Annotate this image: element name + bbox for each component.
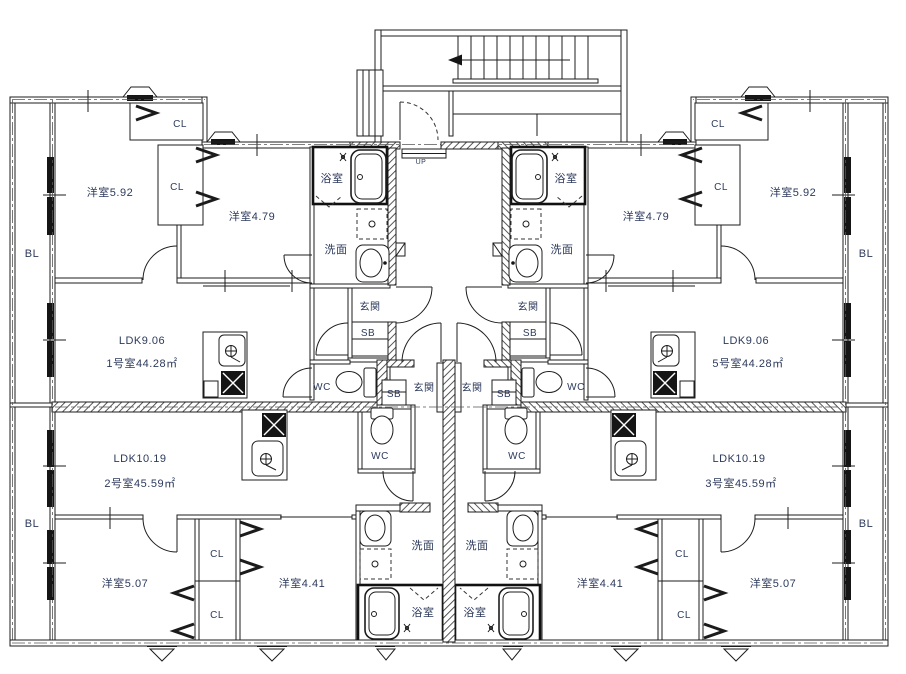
- closet-hanger-mark: [174, 586, 194, 600]
- label-room-441-right: 洋室4.41: [577, 576, 623, 590]
- label-unit-5: 5号室44.28㎡: [712, 356, 783, 370]
- toilet: [371, 408, 393, 444]
- entry-top-wall: [310, 284, 390, 288]
- label-room-592-left: 洋室5.92: [87, 185, 133, 199]
- kitchen-counter: [242, 410, 287, 480]
- washer-icon: [360, 549, 391, 579]
- label-wash-2: 洗面: [412, 539, 435, 552]
- label-entry-2: 玄関: [414, 381, 435, 394]
- cl-column-wall: [236, 519, 240, 640]
- label-wc-2: WC: [371, 451, 389, 462]
- wash2-hatch-wall: [400, 503, 430, 512]
- label-cl-up-right2: CL: [675, 549, 689, 560]
- wash-basin: [360, 511, 391, 546]
- label-unit-2: 2号室45.59㎡: [104, 476, 175, 490]
- label-bath-2: 浴室: [412, 605, 435, 619]
- label-room-507-right: 洋室5.07: [750, 576, 796, 590]
- wc2-side-wall: [411, 405, 415, 473]
- label-cl-mid-left: CL: [170, 182, 184, 193]
- meter-space: [357, 70, 383, 136]
- label-sb-2: SB: [387, 389, 401, 400]
- label-sb-3: SB: [497, 389, 511, 400]
- label-up: UP: [416, 159, 427, 166]
- bedroom-south-wall: [177, 278, 310, 283]
- label-room-479-right: 洋室4.79: [623, 209, 669, 223]
- toilet: [336, 368, 376, 397]
- label-wash-left: 洗面: [325, 243, 348, 256]
- label-bl-bottom-right: BL: [859, 518, 873, 530]
- label-ldk-2: LDK10.19: [114, 453, 167, 465]
- label-unit-1: 1号室44.28㎡: [106, 356, 177, 370]
- right-wing: [449, 87, 888, 661]
- wash-basin: [356, 245, 389, 282]
- label-room-479-left: 洋室4.79: [229, 209, 275, 223]
- stair-treads: [458, 36, 588, 82]
- closet-hanger-mark: [240, 522, 260, 536]
- entrance-door-swing: [400, 102, 438, 140]
- label-wc-3: WC: [508, 451, 526, 462]
- label-entry-1: 玄関: [360, 300, 381, 313]
- ldk-south-wall: [177, 515, 281, 519]
- washer-dot: [372, 561, 378, 567]
- partition-wall: [177, 225, 181, 282]
- label-unit-3: 3号室45.59㎡: [705, 476, 776, 490]
- entry2-side-wall: [437, 363, 443, 412]
- bathtub: [365, 588, 399, 639]
- cl-column-wall: [195, 519, 199, 640]
- label-bath-3: 浴室: [464, 605, 487, 619]
- label-ldk-1: LDK9.06: [119, 335, 165, 347]
- label-ldk-5: LDK9.06: [723, 335, 769, 347]
- wc-top-wall: [310, 360, 350, 364]
- label-room-441-left: 洋室4.41: [279, 576, 325, 590]
- label-sb-5: SB: [523, 328, 537, 339]
- label-cl-top-right: CL: [711, 119, 725, 130]
- washer-dot: [369, 221, 375, 227]
- label-wash-3: 洗面: [466, 539, 489, 552]
- stair-arrow-head: [448, 55, 462, 66]
- label-cl-low-right2: CL: [677, 610, 691, 621]
- floor-plan-page: BL洋室5.92CLCL洋室4.79浴室洗面玄関SBWCLDK9.061号室44…: [0, 0, 906, 674]
- wc2-side-wall: [358, 405, 362, 469]
- wc2-bottom-wall: [358, 469, 415, 473]
- hall-hatch-wall: [388, 322, 396, 360]
- label-cl-top-left: CL: [173, 119, 187, 130]
- washer-icon: [357, 209, 387, 239]
- porch-hatch-wall: [441, 142, 498, 149]
- label-wc-1: WC: [313, 382, 331, 393]
- label-bath-right: 浴室: [555, 171, 578, 185]
- label-wash-right: 洗面: [551, 243, 574, 256]
- label-entry-3: 玄関: [462, 381, 483, 394]
- kitchen-counter: [203, 332, 247, 398]
- label-cl-mid-right: CL: [714, 182, 728, 193]
- entry2-hatch-strip: [387, 360, 414, 367]
- label-room-507-left: 洋室5.07: [102, 576, 148, 590]
- bedroom-south-wall: [55, 278, 142, 283]
- left-wing: [10, 87, 449, 661]
- label-wc-5: WC: [567, 382, 585, 393]
- balcony-left-region: [15, 102, 50, 640]
- label-bl-bottom-left: BL: [25, 518, 39, 530]
- closet-hanger-mark: [174, 624, 194, 638]
- label-bath-left: 浴室: [321, 171, 344, 185]
- label-bl-top-right: BL: [859, 248, 873, 260]
- label-cl-low-left2: CL: [210, 610, 224, 621]
- staircase: [357, 30, 627, 158]
- top-outer-wall: [10, 97, 207, 103]
- floor-plan-drawing: BL洋室5.92CLCL洋室4.79浴室洗面玄関SBWCLDK9.061号室44…: [0, 0, 906, 674]
- label-room-592-right: 洋室5.92: [770, 185, 816, 199]
- label-cl-up-left2: CL: [210, 549, 224, 560]
- bathtub: [351, 150, 386, 203]
- closet-hanger-mark: [240, 560, 260, 574]
- entry-side-wall: [348, 288, 352, 362]
- label-sb-1: SB: [361, 328, 375, 339]
- ldk-south-wall: [55, 515, 143, 519]
- center-party-wall: [443, 360, 455, 642]
- balcony-partition: [10, 403, 52, 407]
- balcony-right-region: [848, 102, 883, 640]
- common-hall: [396, 150, 506, 360]
- label-ldk-3: LDK10.19: [713, 453, 766, 465]
- label-entry-5: 玄関: [518, 300, 539, 313]
- label-bl-top-left: BL: [25, 248, 39, 260]
- wash2-top-wall: [356, 505, 400, 511]
